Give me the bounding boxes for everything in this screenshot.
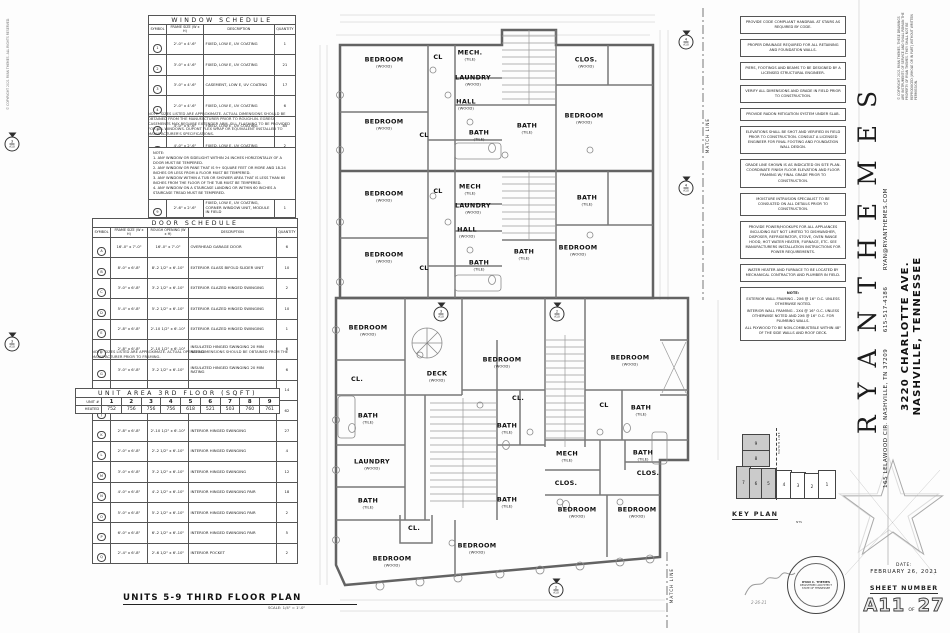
- match-line-label-upper: MATCH LINE: [705, 118, 710, 153]
- unit-number: 1: [102, 398, 122, 406]
- tempered-note-item: 2. ANY WINDOW OR PANE THAT IS 9+ SQUARE …: [153, 166, 291, 176]
- column-header: SYMBOL: [93, 228, 111, 238]
- door-schedule-row: D 5'-4" x 6'-8" 5'-2 1/2" x 6'-10" EXTER…: [93, 299, 298, 319]
- room-name: CL: [419, 264, 428, 272]
- door-frame-size: 5'-0" x 6'-8": [110, 503, 147, 523]
- door-quantity: 6: [276, 360, 297, 380]
- door-symbol: Q: [93, 543, 111, 563]
- window-schedule-row: 3 3'-0" x 4'-6" CASEMENT, LOW E, UV COAT…: [149, 75, 296, 95]
- room-label: BATH (TILE): [358, 497, 378, 510]
- site-note-box: PIERS, FOOTINGS AND BEAMS TO BE DESIGNED…: [740, 62, 846, 80]
- door-schedule-note: NOTE: SIZES LISTED ARE APPROXIMATE. ACTU…: [92, 350, 298, 360]
- room-name: LAUNDRY: [455, 74, 491, 82]
- room-name: CL.: [408, 524, 420, 532]
- section-marker-icon: 4 A10: [679, 177, 694, 196]
- marker-sheet: A10: [438, 314, 443, 318]
- door-description: INTERIOR HINGED SWINGING PAIR: [188, 503, 276, 523]
- room-name: BATH: [469, 259, 489, 267]
- key-plan-unit: 5: [761, 468, 776, 499]
- door-description: EXTERIOR GLASS BIFOLD SLIDER UNIT: [188, 258, 276, 278]
- door-symbol: B: [93, 258, 111, 278]
- door-description: EXTERIOR GLAZED HINGED SWINGING: [188, 278, 276, 298]
- window-symbol: 3: [149, 75, 167, 95]
- door-rough-opening: 4'-2 1/2" x 6'-10": [147, 482, 188, 502]
- door-description: INTERIOR HINGED SWINGING: [188, 421, 276, 441]
- door-description: INTERIOR HINGED SWINGING PAIR: [188, 482, 276, 502]
- project-street: 3220 CHARLOTTE AVE.: [900, 236, 912, 436]
- room-label: HALL (WOOD): [456, 98, 476, 111]
- room-name: BATH: [517, 122, 537, 130]
- room-finish: (WOOD): [565, 120, 604, 125]
- room-name: LAUNDRY: [354, 458, 390, 466]
- room-name: BEDROOM: [373, 555, 412, 563]
- plan-scale: SCALE: 1/4" = 1'-0": [268, 605, 305, 610]
- door-description: INTERIOR HINGED SWINGING: [188, 441, 276, 461]
- unit-number: 5: [181, 398, 201, 406]
- room-name: BEDROOM: [558, 506, 597, 514]
- door-schedule-title: DOOR SCHEDULE: [93, 219, 298, 228]
- room-name: CL: [433, 187, 442, 195]
- room-name: HALL: [457, 226, 477, 234]
- door-frame-size: 3'-0" x 6'-8": [110, 278, 147, 298]
- margin-copyright: © COPYRIGHT 2021 RYAN THEMES. ALL RIGHTS…: [6, 0, 10, 110]
- door-frame-size: 2'-8" x 6'-8": [110, 319, 147, 339]
- door-rough-opening: 3'-2 1/2" x 6'-10": [147, 278, 188, 298]
- room-name: CL: [599, 401, 608, 409]
- key-plan: 9 8 7 6 5 4 3 2 1 MATCH LINE KEY PLAN NT…: [730, 428, 860, 532]
- room-label: CL: [419, 264, 428, 272]
- door-rough-opening: 3'-2 1/2" x 6'-10": [147, 360, 188, 380]
- room-finish: (WOOD): [365, 64, 404, 69]
- room-finish: (TILE): [358, 505, 378, 510]
- notes-column: PROVIDE CODE COMPLIANT HANDRAIL AT STAIR…: [740, 16, 846, 346]
- door-quantity: 2: [276, 503, 297, 523]
- door-quantity: 10: [276, 258, 297, 278]
- column-header: FRAME SIZE (W x H): [110, 228, 147, 238]
- room-finish: (WOOD): [427, 378, 448, 383]
- drawing-sheet: BEDROOM (WOOD) CL MECH. (TILE) LAUNDRY (…: [0, 0, 950, 633]
- room-name: CLOS.: [637, 469, 660, 477]
- door-quantity: 4: [276, 441, 297, 461]
- column-header: DESCRIPTION: [188, 228, 276, 238]
- window-description: FIXED, LOW E, UV COATING, CORNER WINDOW …: [203, 198, 274, 218]
- marker-bubble: 2 A10: [550, 307, 565, 322]
- room-label: BATH (TILE): [631, 404, 651, 417]
- unit-sqft: 760: [240, 406, 260, 413]
- room-name: BATH: [497, 422, 517, 430]
- room-finish: (WOOD): [559, 252, 598, 257]
- room-label: BEDROOM (WOOD): [365, 190, 404, 203]
- tempered-note-box: NOTE: 1. ANY WINDOW OR SIDELIGHT WITHIN …: [148, 147, 296, 200]
- marker-bubble: 2 A10: [549, 583, 564, 598]
- room-name: BEDROOM: [458, 542, 497, 550]
- room-label: CLOS.: [555, 479, 578, 487]
- unit-number: 8: [240, 398, 260, 406]
- room-name: MECH.: [458, 49, 483, 57]
- door-schedule-row: P 6'-0" x 6'-8" 6'-2 1/2" x 6'-10" INTER…: [93, 523, 298, 543]
- door-schedule-row: L 2'-0" x 6'-8" 2'-2 1/2" x 6'-10" INTER…: [93, 441, 298, 461]
- sheet-info-block: DATE: FEBRUARY 26, 2021 SHEET NUMBER A11…: [862, 563, 946, 616]
- key-plan-match-label: MATCH LINE: [777, 432, 781, 454]
- door-frame-size: 2'-8" x 6'-8": [110, 421, 147, 441]
- room-name: CL: [433, 53, 442, 61]
- room-finish: (TILE): [556, 458, 578, 463]
- framing-note-line: EXTERIOR WALL FRAMING - 2X6 @ 16" O.C. U…: [745, 297, 841, 307]
- room-name: MECH: [556, 450, 578, 458]
- marker-sheet: A10: [554, 314, 559, 318]
- door-rough-opening: 8'-2 1/2" x 6'-10": [147, 258, 188, 278]
- room-label: BATH (TILE): [469, 259, 489, 272]
- copyright-text: © COPYRIGHT 2021 RYAN THEMES. THESE DRAW…: [897, 12, 925, 100]
- site-note-box: ELEVATIONS SHALL BE SHOT AND VERIFIED IN…: [740, 126, 846, 154]
- unit-number-label: UNIT #: [76, 398, 102, 406]
- door-quantity: 27: [276, 421, 297, 441]
- door-frame-size: 16'-0" x 7'-0": [110, 237, 147, 257]
- marker-bubble: 3 A10: [5, 337, 20, 352]
- room-label: BATH (TILE): [514, 248, 534, 261]
- room-name: CLOS.: [555, 479, 578, 487]
- section-marker-icon: 3 A10: [5, 133, 20, 152]
- door-description: EXTERIOR GLAZED HINGED SWINGING: [188, 299, 276, 319]
- section-marker-icon: 2 A10: [550, 303, 565, 322]
- door-schedule-row: Q 2'-4" x 6'-8" 2'-6 1/2" x 6'-10" INTER…: [93, 543, 298, 563]
- room-finish: (TILE): [577, 202, 597, 207]
- unit-sqft: 761: [260, 406, 280, 413]
- door-quantity: 6: [276, 237, 297, 257]
- room-name: BEDROOM: [365, 56, 404, 64]
- door-symbol: P: [93, 523, 111, 543]
- door-rough-opening: 16'-0" x 7'-0": [147, 237, 188, 257]
- door-symbol: G: [93, 360, 111, 380]
- window-quantity: 17: [274, 75, 295, 95]
- room-name: BEDROOM: [565, 112, 604, 120]
- framing-note-title: NOTE:: [745, 291, 841, 296]
- window-schedule-title: WINDOW SCHEDULE: [149, 16, 296, 25]
- room-label: LAUNDRY (WOOD): [455, 202, 491, 215]
- marker-sheet: A10: [9, 144, 14, 148]
- room-label: CLOS. (WOOD): [575, 56, 598, 69]
- room-finish: (WOOD): [458, 550, 497, 555]
- room-label: BEDROOM (WOOD): [365, 118, 404, 131]
- framing-note-line: ALL PLYWOOD TO BE NON-COMBUSTIBLE WITHIN…: [745, 326, 841, 336]
- unit-sqft: 521: [200, 406, 220, 413]
- door-frame-size: 3'-0" x 6'-8": [110, 462, 147, 482]
- seal-inner-ring: RYAN C. THEMES REGISTERED ARCHITECT STAT…: [794, 563, 838, 607]
- room-finish: (TILE): [469, 137, 489, 142]
- seal-signature-date: 2-26-21: [751, 600, 767, 605]
- column-header: SYMBOL: [149, 25, 167, 35]
- room-finish: (TILE): [469, 267, 489, 272]
- site-note-box: PROVIDE RADON MITIGATION SYSTEM UNDER SL…: [740, 108, 846, 121]
- door-rough-opening: 2'-10 1/2" x 6'-10": [147, 421, 188, 441]
- unit-sqft: 756: [141, 406, 161, 413]
- room-finish: (TILE): [497, 430, 517, 435]
- door-quantity: 18: [276, 482, 297, 502]
- window-symbol: 1: [149, 34, 167, 54]
- sheet-of-label: OF: [908, 608, 914, 613]
- room-name: MECH: [459, 183, 481, 191]
- room-finish: (TILE): [633, 457, 653, 462]
- room-label: BATH (TILE): [577, 194, 597, 207]
- room-label: HALL (WOOD): [457, 226, 477, 239]
- room-finish: (TILE): [459, 191, 481, 196]
- site-note-box: PROVIDE POWER/HOOKUPS FOR ALL APPLIANCES…: [740, 221, 846, 259]
- column-header: FRAME SIZE (W x H): [166, 25, 203, 35]
- door-schedule-row: C 3'-0" x 6'-8" 3'-2 1/2" x 6'-10" EXTER…: [93, 278, 298, 298]
- door-frame-size: 2'-4" x 6'-8": [110, 543, 147, 563]
- door-schedule-row: A 16'-0" x 7'-0" 16'-0" x 7'-0" OVERHEAD…: [93, 237, 298, 257]
- tempered-note-item: 3. ANY WINDOW WITHIN A TUB OR SHOWER ARE…: [153, 176, 291, 186]
- room-label: CL: [433, 53, 442, 61]
- door-rough-opening: 5'-2 1/2" x 6'-10": [147, 503, 188, 523]
- window-size: 3'-0" x 4'-6": [166, 75, 203, 95]
- tempered-note-item: 1. ANY WINDOW OR SIDELIGHT WITHIN 24 INC…: [153, 156, 291, 166]
- room-finish: (TILE): [514, 256, 534, 261]
- site-note-box: PROVIDE CODE COMPLIANT HANDRAIL AT STAIR…: [740, 16, 846, 34]
- room-name: BEDROOM: [483, 356, 522, 364]
- room-finish: (WOOD): [575, 64, 598, 69]
- door-symbol: D: [93, 299, 111, 319]
- unit-area-value-row: HEATED 752756756756618521503760761: [76, 406, 280, 413]
- site-note-box: GRADE LINE SHOWN IS AS INDICATED ON SITE…: [740, 159, 846, 187]
- plan-title: UNITS 5-9 THIRD FLOOR PLAN: [123, 593, 357, 605]
- room-label: BEDROOM (WOOD): [349, 324, 388, 337]
- unit-area-header-row: UNIT # 123456789: [76, 398, 280, 406]
- door-symbol: N: [93, 482, 111, 502]
- room-label: BEDROOM (WOOD): [558, 506, 597, 519]
- room-name: BATH: [631, 404, 651, 412]
- room-label: BATH (TILE): [469, 129, 489, 142]
- door-frame-size: 3'-0" x 6'-8": [110, 360, 147, 380]
- window-quantity: 1: [274, 198, 295, 218]
- room-label: CLOS.: [637, 469, 660, 477]
- room-name: BEDROOM: [349, 324, 388, 332]
- room-label: BEDROOM (WOOD): [565, 112, 604, 125]
- marker-sheet: A10: [553, 590, 558, 594]
- unit-number: 6: [200, 398, 220, 406]
- marker-sheet: A10: [683, 188, 688, 192]
- door-quantity: 12: [276, 462, 297, 482]
- door-schedule-row: M 3'-0" x 6'-8" 3'-2 1/2" x 6'-10" INTER…: [93, 462, 298, 482]
- door-symbol: O: [93, 503, 111, 523]
- door-frame-size: 8'-0" x 6'-8": [110, 258, 147, 278]
- room-finish: (WOOD): [455, 210, 491, 215]
- room-name: LAUNDRY: [455, 202, 491, 210]
- door-schedule-row: N 4'-0" x 6'-8" 4'-2 1/2" x 6'-10" INTER…: [93, 482, 298, 502]
- room-name: BEDROOM: [559, 244, 598, 252]
- room-name: BEDROOM: [611, 354, 650, 362]
- room-label: CL: [433, 187, 442, 195]
- match-lines: [667, 8, 703, 628]
- brand-title: RYANTHEMES: [853, 24, 887, 484]
- door-schedule-row: O 5'-0" x 6'-8" 5'-2 1/2" x 6'-10" INTER…: [93, 503, 298, 523]
- key-plan-unit: 1: [818, 470, 836, 499]
- door-quantity: 2: [276, 543, 297, 563]
- door-rough-opening: 5'-2 1/2" x 6'-10": [147, 299, 188, 319]
- room-label: BEDROOM (WOOD): [365, 251, 404, 264]
- unit-number: 4: [161, 398, 181, 406]
- room-name: CL: [419, 131, 428, 139]
- door-description: INTERIOR HINGED SWINGING PAIR: [188, 523, 276, 543]
- architect-seal: RYAN C. THEMES REGISTERED ARCHITECT STAT…: [787, 556, 845, 614]
- door-rough-opening: 3'-2 1/2" x 6'-10": [147, 462, 188, 482]
- room-label: CL.: [351, 375, 363, 383]
- room-name: CL.: [512, 394, 524, 402]
- unit-number: 7: [220, 398, 240, 406]
- seal-state: STATE OF TENNESSEE: [802, 587, 830, 590]
- unit-area-table: UNIT AREA 3RD FLOOR (SQFT) UNIT # 123456…: [75, 388, 280, 414]
- room-name: CL.: [351, 375, 363, 383]
- room-label: MECH. (TILE): [458, 49, 483, 62]
- room-label: CL: [419, 131, 428, 139]
- door-symbol: C: [93, 278, 111, 298]
- key-plan-unit: 8: [742, 450, 770, 467]
- section-marker-icon: 3 A10: [5, 333, 20, 352]
- section-marker-icon: 4 A10: [679, 31, 694, 50]
- room-label: BEDROOM (WOOD): [559, 244, 598, 257]
- room-finish: (TILE): [517, 130, 537, 135]
- door-quantity: 5: [276, 523, 297, 543]
- room-finish: (WOOD): [618, 514, 657, 519]
- section-marker-icon: 3 A10: [434, 303, 449, 322]
- column-header: QUANTITY: [274, 25, 295, 35]
- key-plan-scale: NTS: [796, 520, 802, 524]
- unit-number: 2: [121, 398, 141, 406]
- unit-number: 9: [260, 398, 280, 406]
- door-symbol: E: [93, 319, 111, 339]
- room-finish: (WOOD): [558, 514, 597, 519]
- unit-sqft: 756: [121, 406, 141, 413]
- room-label: CL.: [408, 524, 420, 532]
- door-schedule-header-row: SYMBOLFRAME SIZE (W x H)ROUGH OPENING (W…: [93, 228, 298, 238]
- site-note-box: MOISTURE INTRUSION SPECIALIST TO BE CONS…: [740, 193, 846, 216]
- window-size: 2'-6" x 2'-6": [166, 198, 203, 218]
- window-size: 3'-0" x 4'-6": [166, 55, 203, 75]
- room-label: CL.: [512, 394, 524, 402]
- room-label: BATH (TILE): [517, 122, 537, 135]
- room-name: BATH: [358, 412, 378, 420]
- room-label: MECH (TILE): [556, 450, 578, 463]
- room-finish: (WOOD): [349, 332, 388, 337]
- window-schedule-note: NOTE: SIZES LISTED ARE APPROXIMATE. ACTU…: [148, 112, 296, 137]
- project-city: NASHVILLE, TENNESSEE: [912, 236, 924, 436]
- door-frame-size: 4'-0" x 6'-8": [110, 482, 147, 502]
- door-description: INTERIOR POCKET: [188, 543, 276, 563]
- brand-email: RYAN@RYANTHEMES.COM: [883, 188, 893, 270]
- door-rough-opening: 2'-2 1/2" x 6'-10": [147, 441, 188, 461]
- room-finish: (TILE): [631, 412, 651, 417]
- door-schedule-row: G 3'-0" x 6'-8" 3'-2 1/2" x 6'-10" INSUL…: [93, 360, 298, 380]
- match-line-label-lower: MATCH LINE: [669, 568, 674, 603]
- window-symbol: 2: [149, 55, 167, 75]
- door-description: OVERHEAD GARAGE DOOR: [188, 237, 276, 257]
- room-name: BATH: [633, 449, 653, 457]
- unit-sqft: 618: [181, 406, 201, 413]
- door-frame-size: 2'-0" x 6'-8": [110, 441, 147, 461]
- room-label: BEDROOM (WOOD): [365, 56, 404, 69]
- door-frame-size: 6'-0" x 6'-8": [110, 523, 147, 543]
- window-description: FIXED, LOW E, UV COATING: [203, 55, 274, 75]
- room-label: BEDROOM (WOOD): [611, 354, 650, 367]
- unit-sqft: 752: [102, 406, 122, 413]
- marker-bubble: 3 A10: [434, 307, 449, 322]
- door-symbol: A: [93, 237, 111, 257]
- framing-note-box: NOTE: EXTERIOR WALL FRAMING - 2X6 @ 16" …: [740, 287, 846, 341]
- door-schedule-row: B 8'-0" x 6'-8" 8'-2 1/2" x 6'-10" EXTER…: [93, 258, 298, 278]
- room-finish: (WOOD): [611, 362, 650, 367]
- room-name: BATH: [358, 497, 378, 505]
- room-finish: (WOOD): [365, 259, 404, 264]
- window-symbol: 9: [149, 198, 167, 218]
- marker-sheet: A10: [683, 42, 688, 46]
- marker-sheet: A10: [9, 344, 14, 348]
- door-quantity: 1: [276, 319, 297, 339]
- site-note-box: WATER HEATER AND FURNACE TO BE LOCATED B…: [740, 264, 846, 282]
- room-label: LAUNDRY (WOOD): [354, 458, 390, 471]
- section-marker-icon: 2 A10: [549, 579, 564, 598]
- window-schedule-header-row: SYMBOLFRAME SIZE (W x H)DESCRIPTIONQUANT…: [149, 25, 296, 35]
- room-finish: (TILE): [358, 420, 378, 425]
- room-label: BEDROOM (WOOD): [483, 356, 522, 369]
- door-quantity: 10: [276, 299, 297, 319]
- column-header: DESCRIPTION: [203, 25, 274, 35]
- unit-sqft: 503: [220, 406, 240, 413]
- room-finish: (WOOD): [365, 198, 404, 203]
- door-quantity: 2: [276, 278, 297, 298]
- unit-sqft: 756: [161, 406, 181, 413]
- site-note-box: VERIFY ALL DIMENSIONS AND GRADE IN FIELD…: [740, 85, 846, 103]
- room-name: CLOS.: [575, 56, 598, 64]
- room-name: BATH: [577, 194, 597, 202]
- window-schedule-row: 9 2'-6" x 2'-6" FIXED, LOW E, UV COATING…: [149, 198, 296, 218]
- door-schedule-row: K 2'-8" x 6'-8" 2'-10 1/2" x 6'-10" INTE…: [93, 421, 298, 441]
- room-name: BATH: [469, 129, 489, 137]
- framing-note-line: INTERIOR WALL FRAMING - 2X4 @ 16" O.C. U…: [745, 309, 841, 324]
- sheet-total-value: 27: [918, 595, 945, 616]
- room-label: CL: [599, 401, 608, 409]
- unit-heated-label: HEATED: [76, 406, 102, 413]
- door-rough-opening: 6'-2 1/2" x 6'-10": [147, 523, 188, 543]
- brand-phone: 615-517-4186: [883, 287, 893, 333]
- date-label: DATE:: [862, 563, 946, 568]
- room-name: BEDROOM: [618, 506, 657, 514]
- window-schedule-row: 2 3'-0" x 4'-6" FIXED, LOW E, UV COATING…: [149, 55, 296, 75]
- door-schedule-row: E 2'-8" x 6'-8" 2'-10 1/2" x 6'-10" EXTE…: [93, 319, 298, 339]
- marker-bubble: 4 A10: [679, 181, 694, 196]
- room-label: BATH (TILE): [497, 422, 517, 435]
- room-finish: (WOOD): [354, 466, 390, 471]
- door-symbol: K: [93, 421, 111, 441]
- door-rough-opening: 2'-6 1/2" x 6'-10": [147, 543, 188, 563]
- sheet-number-value: A11: [863, 595, 905, 616]
- window-schedule-row: 1 2'-0" x 4'-6" FIXED, LOW E, UV COATING…: [149, 34, 296, 54]
- door-description: EXTERIOR GLAZED HINGED SWINGING: [188, 319, 276, 339]
- key-plan-label: KEY PLAN: [732, 510, 778, 520]
- room-finish: (WOOD): [457, 234, 477, 239]
- marker-bubble: 4 A10: [679, 35, 694, 50]
- room-label: BEDROOM (WOOD): [618, 506, 657, 519]
- room-name: DECK: [427, 370, 448, 378]
- room-name: BATH: [497, 496, 517, 504]
- room-finish: (TILE): [497, 504, 517, 509]
- project-address: 3220 CHARLOTTE AVE. NASHVILLE, TENNESSEE: [900, 236, 924, 436]
- room-label: BEDROOM (WOOD): [458, 542, 497, 555]
- room-label: DECK (WOOD): [427, 370, 448, 383]
- door-frame-size: 5'-4" x 6'-8": [110, 299, 147, 319]
- room-name: BEDROOM: [365, 118, 404, 126]
- room-name: BEDROOM: [365, 190, 404, 198]
- window-size: 2'-0" x 4'-6": [166, 34, 203, 54]
